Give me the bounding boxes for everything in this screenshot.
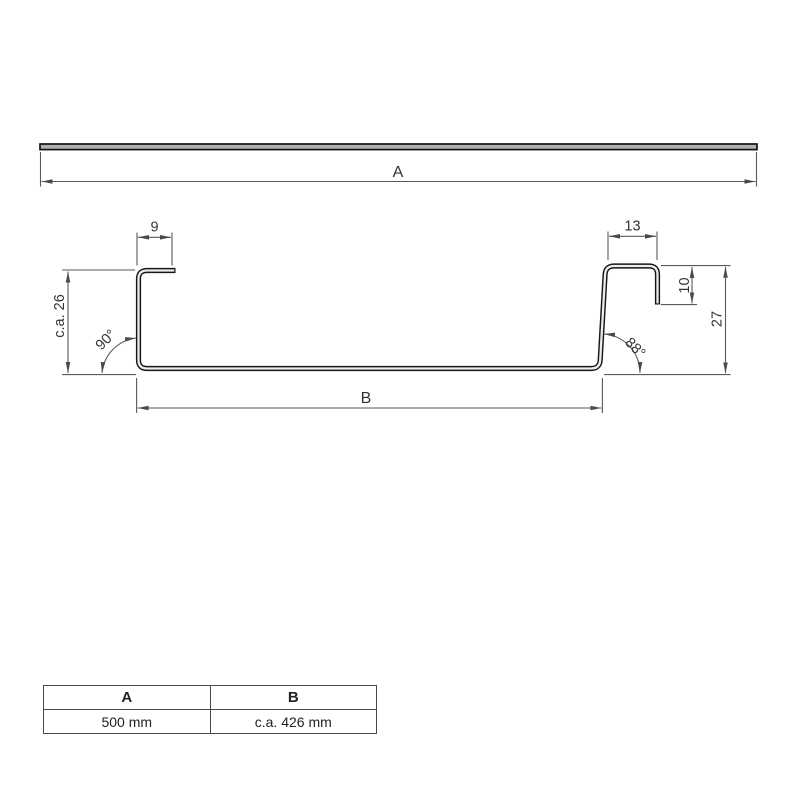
angle-90-label: 90° bbox=[93, 327, 120, 354]
dim-10: 10 bbox=[661, 267, 697, 305]
cross-section: 9 13 c.a. 26 90° bbox=[52, 219, 731, 414]
technical-drawing-page: A 9 13 bbox=[0, 0, 800, 800]
top-view: A bbox=[40, 144, 757, 187]
dim-a: A bbox=[41, 152, 757, 187]
spec-table: A B 500 mm c.a. 426 mm bbox=[43, 685, 377, 734]
dim-13-label: 13 bbox=[624, 219, 640, 235]
table-header-b: B bbox=[210, 686, 377, 710]
technical-drawing-canvas: A 9 13 bbox=[0, 0, 800, 800]
dim-a-label: A bbox=[393, 164, 404, 181]
dim-b-label: B bbox=[361, 390, 372, 407]
dim-27-label: 27 bbox=[710, 311, 726, 327]
profile-sheet-core bbox=[139, 266, 658, 369]
dim-13: 13 bbox=[608, 219, 657, 261]
dim-10-label: 10 bbox=[677, 277, 693, 293]
table-value-row: 500 mm c.a. 426 mm bbox=[44, 710, 377, 734]
table-header-row: A B bbox=[44, 686, 377, 710]
dim-9: 9 bbox=[137, 220, 172, 266]
dim-b: B bbox=[137, 378, 603, 413]
angle-88-label: 88° bbox=[621, 335, 648, 362]
table-value-b: c.a. 426 mm bbox=[210, 710, 377, 734]
sheet-length-bar bbox=[40, 144, 757, 150]
dim-27: 27 bbox=[604, 267, 731, 375]
table-value-a: 500 mm bbox=[44, 710, 211, 734]
dim-ca26: c.a. 26 bbox=[52, 270, 136, 375]
dim-9-label: 9 bbox=[150, 220, 158, 236]
angle-90: 90° bbox=[93, 327, 136, 373]
table-header-a: A bbox=[44, 686, 211, 710]
dim-ca26-label: c.a. 26 bbox=[52, 294, 68, 338]
profile-outline bbox=[139, 266, 658, 369]
angle-88: 88° bbox=[604, 334, 648, 373]
